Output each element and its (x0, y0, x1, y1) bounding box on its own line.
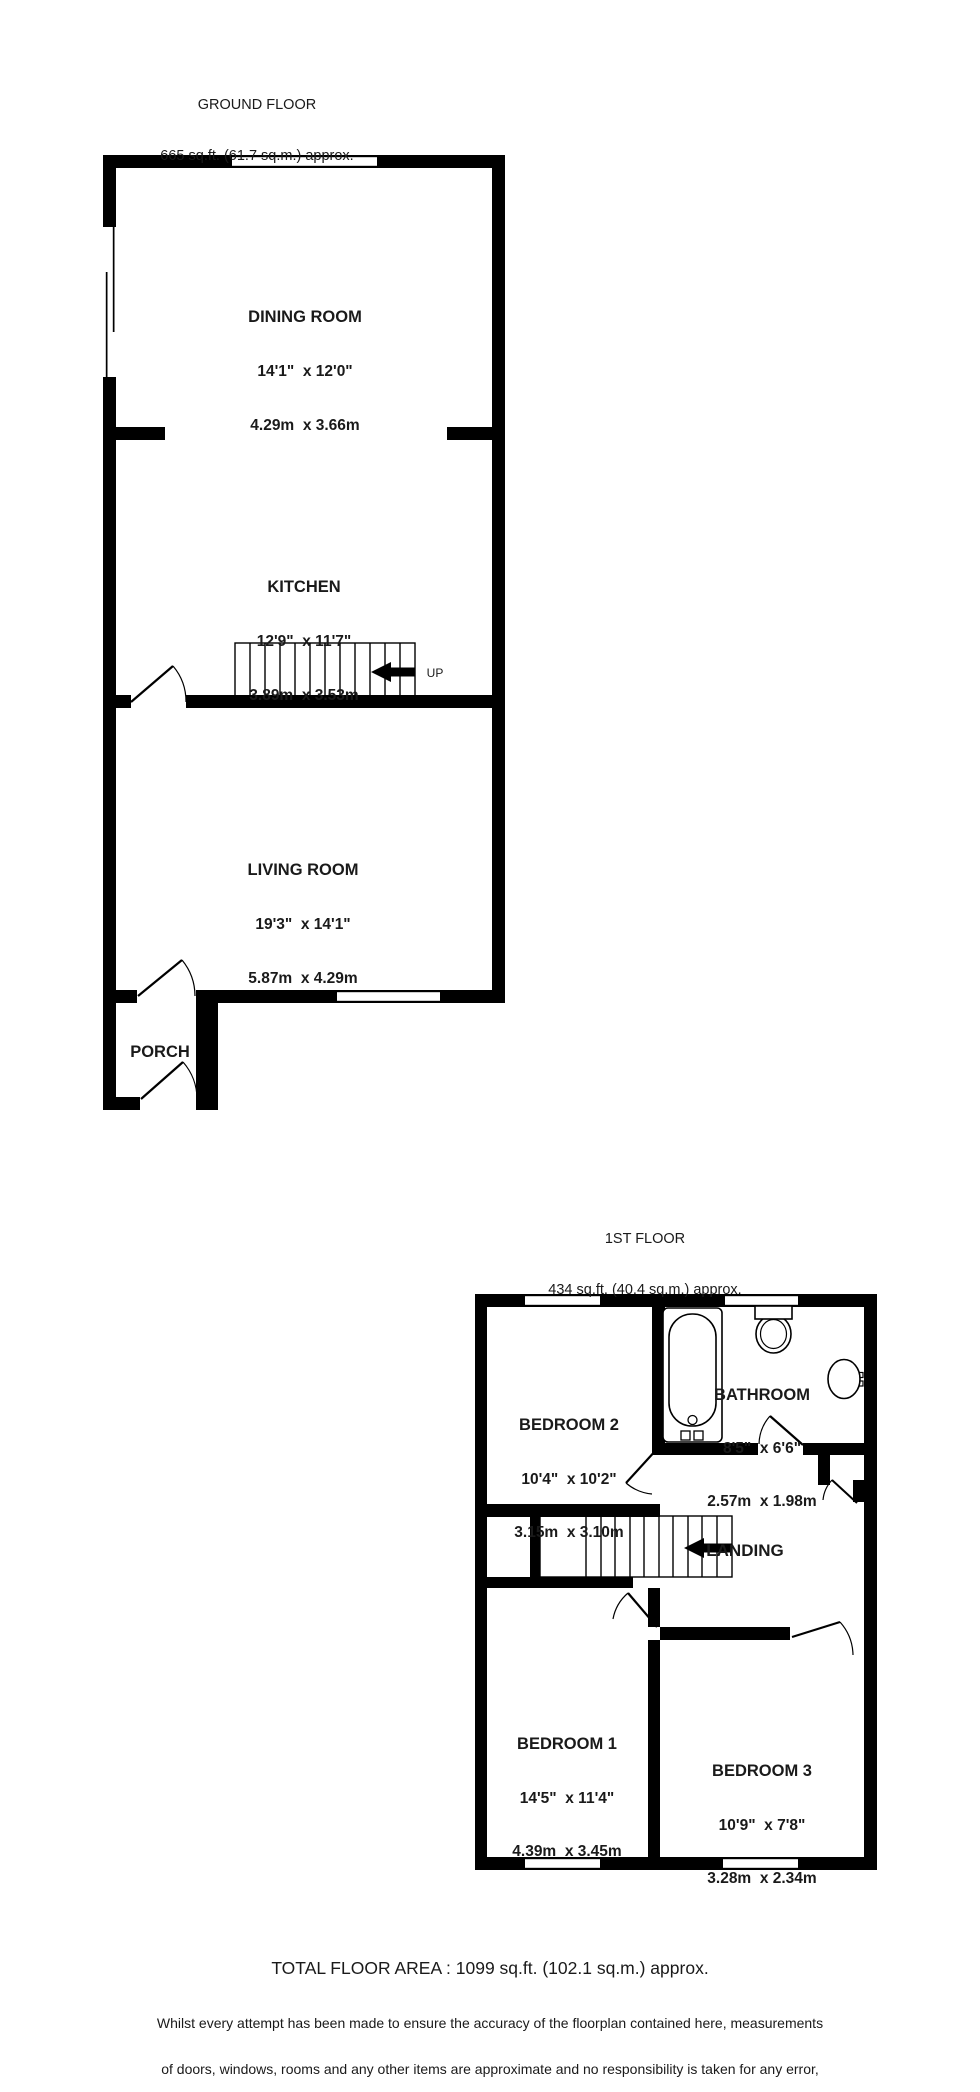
room-label-bedroom-2: BEDROOM 2 10'4" x 10'2" 3.15m x 3.10m (459, 1381, 679, 1578)
room-label-bedroom-3: BEDROOM 3 10'9" x 7'8" 3.28m x 2.34m (652, 1727, 872, 1924)
door-bedroom3 (792, 1622, 853, 1655)
window-dining-left (106, 226, 115, 377)
stairs-up-label: UP (420, 666, 450, 680)
floorplan-page: GROUND FLOOR 665 sq.ft. (61.7 sq.m.) app… (0, 0, 980, 2092)
disclaimer-line: of doors, windows, rooms and any other i… (0, 2062, 980, 2077)
total-floor-area: TOTAL FLOOR AREA : 1099 sq.ft. (102.1 sq… (0, 1959, 980, 1978)
disclaimer-text: Whilst every attempt has been made to en… (0, 1986, 980, 2092)
door-porch (141, 1062, 197, 1099)
room-label-porch: PORCH (80, 1043, 240, 1062)
ground-floor-area: 665 sq.ft. (61.7 sq.m.) approx. (97, 149, 417, 164)
first-floor-header: 1ST FLOOR 434 sq.ft. (40.4 sq.m.) approx… (485, 1196, 805, 1334)
room-label-living-room: LIVING ROOM 19'3" x 14'1" 5.87m x 4.29m (183, 825, 423, 1025)
room-label-landing: LANDING (665, 1541, 825, 1561)
first-floor-title: 1ST FLOOR (485, 1232, 805, 1247)
first-floor-area: 434 sq.ft. (40.4 sq.m.) approx. (485, 1283, 805, 1298)
room-label-kitchen: KITCHEN 12'9" x 11'7" 3.89m x 3.53m (184, 542, 424, 742)
room-label-dining-room: DINING ROOM 14'1" x 12'0" 4.29m x 3.66m (185, 272, 425, 472)
disclaimer-line: Whilst every attempt has been made to en… (0, 2016, 980, 2031)
ground-floor-header: GROUND FLOOR 665 sq.ft. (61.7 sq.m.) app… (97, 62, 417, 200)
room-label-bedroom-1: BEDROOM 1 14'5" x 11'4" 4.39m x 3.45m (457, 1700, 677, 1897)
door-kitchen-living (131, 666, 186, 702)
room-label-bathroom: BATHROOM 8'5" x 6'6" 2.57m x 1.98m (652, 1351, 872, 1546)
ground-floor-title: GROUND FLOOR (97, 98, 417, 113)
